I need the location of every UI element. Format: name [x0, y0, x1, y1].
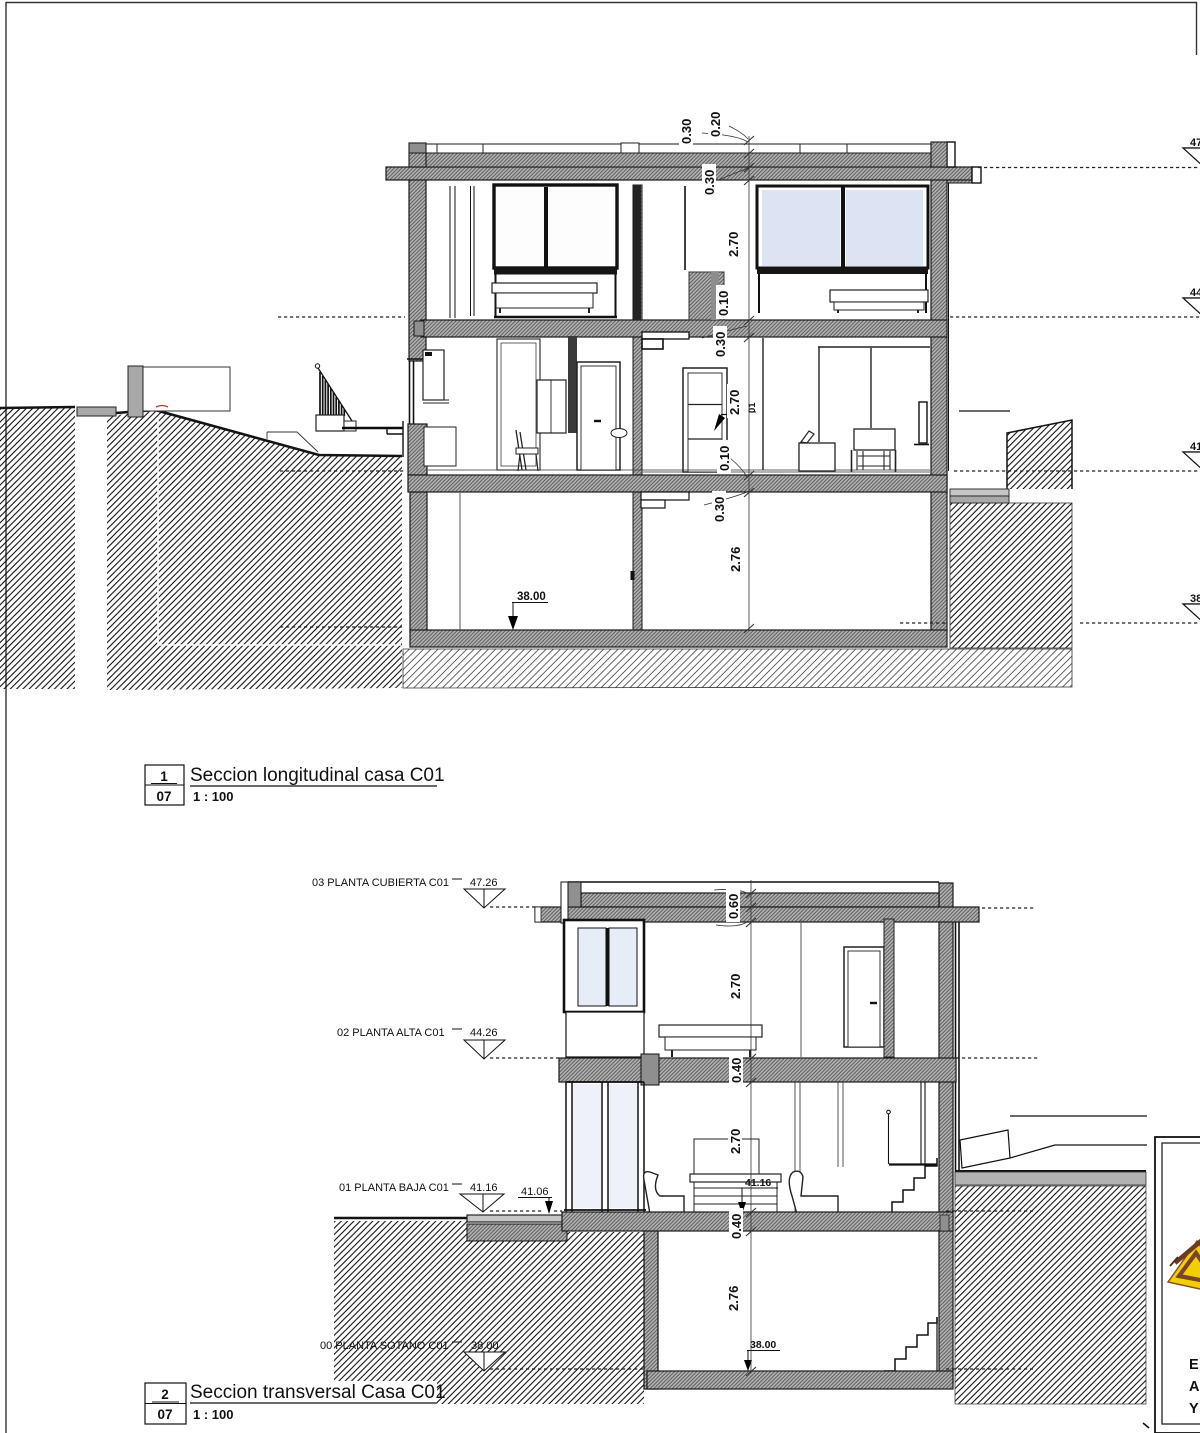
svg-text:44.26: 44.26: [470, 1027, 498, 1039]
svg-text:41.16: 41.16: [745, 1177, 771, 1189]
svg-text:01: 01: [747, 402, 758, 413]
svg-text:38.00: 38.00: [1190, 593, 1200, 605]
svg-text:1 : 100: 1 : 100: [193, 1407, 233, 1422]
svg-text:0.60: 0.60: [726, 894, 741, 919]
svg-text:0.30: 0.30: [713, 332, 728, 357]
svg-text:41.16: 41.16: [1190, 441, 1200, 453]
svg-text:38.00: 38.00: [517, 591, 546, 603]
svg-text:07: 07: [156, 789, 171, 804]
svg-text:0.40: 0.40: [729, 1058, 744, 1083]
svg-text:0.30: 0.30: [702, 170, 717, 195]
svg-text:00 PLANTA SOTANO C01: 00 PLANTA SOTANO C01: [320, 1340, 449, 1352]
svg-text:1 : 100: 1 : 100: [193, 789, 233, 804]
svg-text:0.30: 0.30: [679, 119, 694, 144]
svg-text:0.10: 0.10: [717, 446, 732, 471]
svg-text:01 PLANTA BAJA C01: 01 PLANTA BAJA C01: [339, 1182, 449, 1194]
svg-text:0.20: 0.20: [708, 112, 723, 137]
svg-text:Y: Y: [1189, 1401, 1199, 1417]
svg-text:2.70: 2.70: [728, 974, 743, 999]
svg-text:44.26: 44.26: [1190, 287, 1200, 299]
svg-text:47.26: 47.26: [470, 877, 498, 889]
svg-text:38.00: 38.00: [750, 1339, 776, 1351]
svg-text:2: 2: [161, 1387, 169, 1402]
svg-text:03 PLANTA CUBIERTA C01: 03 PLANTA CUBIERTA C01: [312, 877, 449, 889]
svg-text:02 PLANTA ALTA C01: 02 PLANTA ALTA C01: [337, 1027, 445, 1039]
svg-text:47.26: 47.26: [1190, 137, 1200, 149]
svg-text:41.06: 41.06: [521, 1186, 549, 1198]
svg-text:0.40: 0.40: [729, 1214, 744, 1239]
svg-text:2.70: 2.70: [726, 232, 741, 257]
svg-text:2.70: 2.70: [728, 1129, 743, 1154]
svg-text:Seccion transversal Casa C01: Seccion transversal Casa C01: [190, 1382, 446, 1403]
svg-text:0.10: 0.10: [716, 291, 731, 316]
svg-text:A: A: [1189, 1379, 1200, 1395]
svg-text:0.30: 0.30: [712, 497, 727, 522]
svg-text:2.76: 2.76: [728, 547, 743, 572]
svg-text:38.00: 38.00: [471, 1340, 499, 1352]
svg-text:2.76: 2.76: [726, 1286, 741, 1311]
svg-text:1: 1: [160, 769, 168, 784]
svg-text:Seccion longitudinal casa C01: Seccion longitudinal casa C01: [190, 765, 445, 786]
svg-text:2.70: 2.70: [727, 390, 742, 415]
svg-text:E: E: [1189, 1357, 1199, 1373]
svg-text:41.16: 41.16: [470, 1182, 498, 1194]
svg-text:07: 07: [157, 1407, 172, 1422]
